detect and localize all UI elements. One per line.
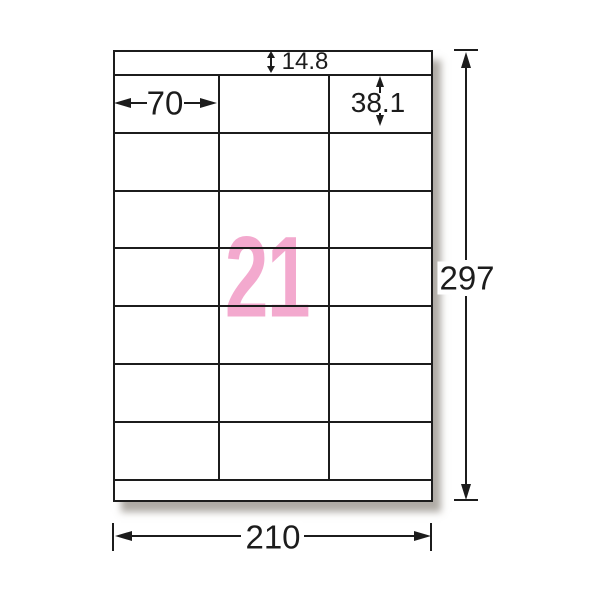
row-divider-line	[115, 305, 431, 307]
arrow-shaft	[465, 296, 467, 486]
arrow-shaft	[129, 535, 241, 537]
dimension-cap	[454, 49, 478, 51]
arrowhead-down-icon	[461, 484, 471, 500]
dimension-cap	[454, 499, 478, 501]
arrowhead-up-icon	[461, 52, 471, 68]
arrow-shaft	[304, 535, 416, 537]
arrow-shaft	[465, 65, 467, 260]
row-divider-line	[115, 190, 431, 192]
label-sheet-diagram: 21 14.8 70 38.1 297	[0, 0, 600, 600]
sheet-width-value: 210	[243, 521, 302, 554]
row-divider-line	[115, 247, 431, 249]
column-divider-line	[328, 74, 330, 481]
bottom-margin-line	[115, 479, 431, 481]
row-divider-line	[115, 132, 431, 134]
top-margin-line	[115, 74, 431, 76]
sheet-height-value: 297	[437, 262, 496, 295]
label-count-number: 21	[225, 221, 309, 336]
label-sheet: 21	[113, 50, 433, 502]
dimension-cap	[112, 523, 114, 551]
column-divider-line	[218, 74, 220, 481]
dimension-cap	[430, 523, 432, 551]
row-divider-line	[115, 363, 431, 365]
arrowhead-right-icon	[414, 531, 431, 541]
arrowhead-left-icon	[115, 531, 132, 541]
row-divider-line	[115, 421, 431, 423]
